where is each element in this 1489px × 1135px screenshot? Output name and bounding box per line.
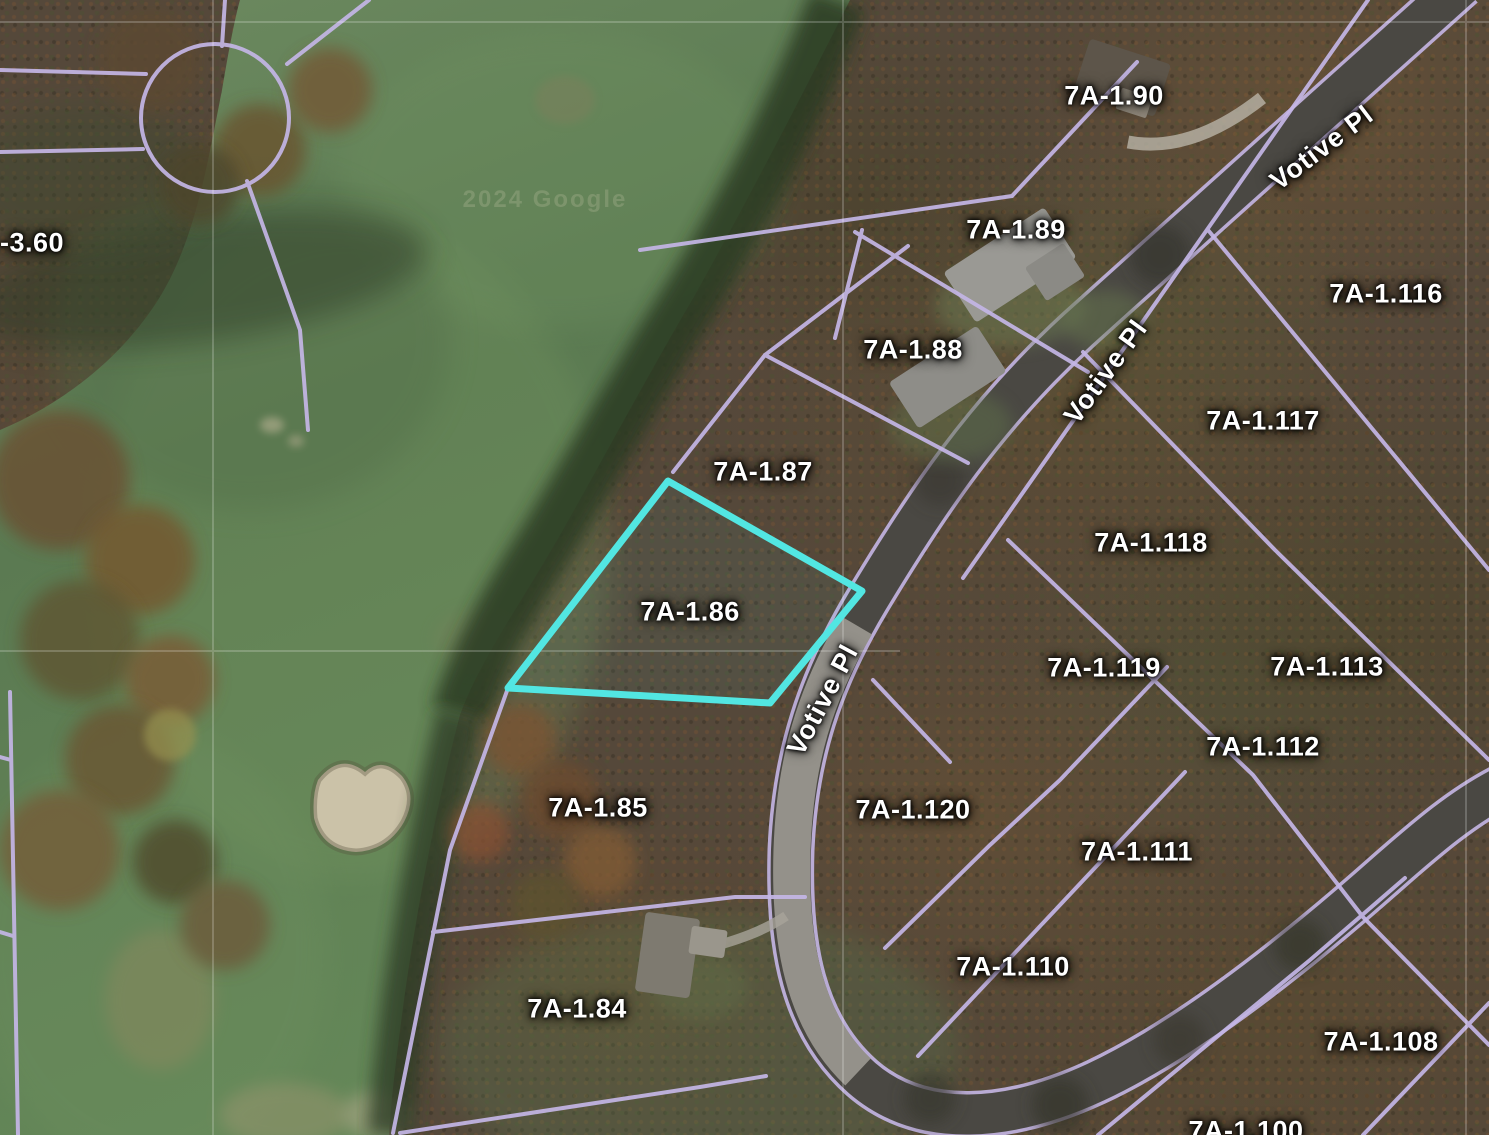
parcel-label: 7A-1.87 [713, 457, 813, 488]
parcel-label: 7A-1.88 [863, 335, 963, 366]
parcel-label: 7A-1.113 [1270, 652, 1384, 683]
parcel-label: 7A-1.110 [956, 952, 1070, 983]
parcel-label: 7A-1.116 [1329, 279, 1443, 310]
parcel-label: 7A-1.117 [1206, 406, 1320, 437]
house-roof [635, 912, 701, 999]
parcel-label: 7A-1.85 [548, 793, 648, 824]
parcel-label: 7A-1.108 [1323, 1027, 1438, 1058]
parcel-label: 7A-1.112 [1206, 732, 1320, 763]
parcel-label: 7A-1.119 [1047, 653, 1161, 684]
house-roof [688, 926, 728, 959]
parcel-label: 7A-1.89 [966, 215, 1066, 246]
parcel-label: -3.60 [0, 228, 64, 259]
parcel-label: 7A-1.120 [855, 795, 970, 826]
parcel-label-highlighted: 7A-1.86 [640, 597, 740, 628]
map-canvas[interactable]: 2024 Google -3.60 7A-1.90 7A-1.89 7A-1.8… [0, 0, 1489, 1135]
parcel-label: 7A-1.118 [1094, 528, 1208, 559]
parcel-label: 7A-1.111 [1081, 837, 1193, 868]
parcel-label: 7A-1.100 [1188, 1116, 1303, 1135]
parcel-label: 7A-1.84 [527, 994, 627, 1025]
imagery-watermark: 2024 Google [463, 186, 628, 214]
parcel-label: 7A-1.90 [1064, 81, 1164, 112]
